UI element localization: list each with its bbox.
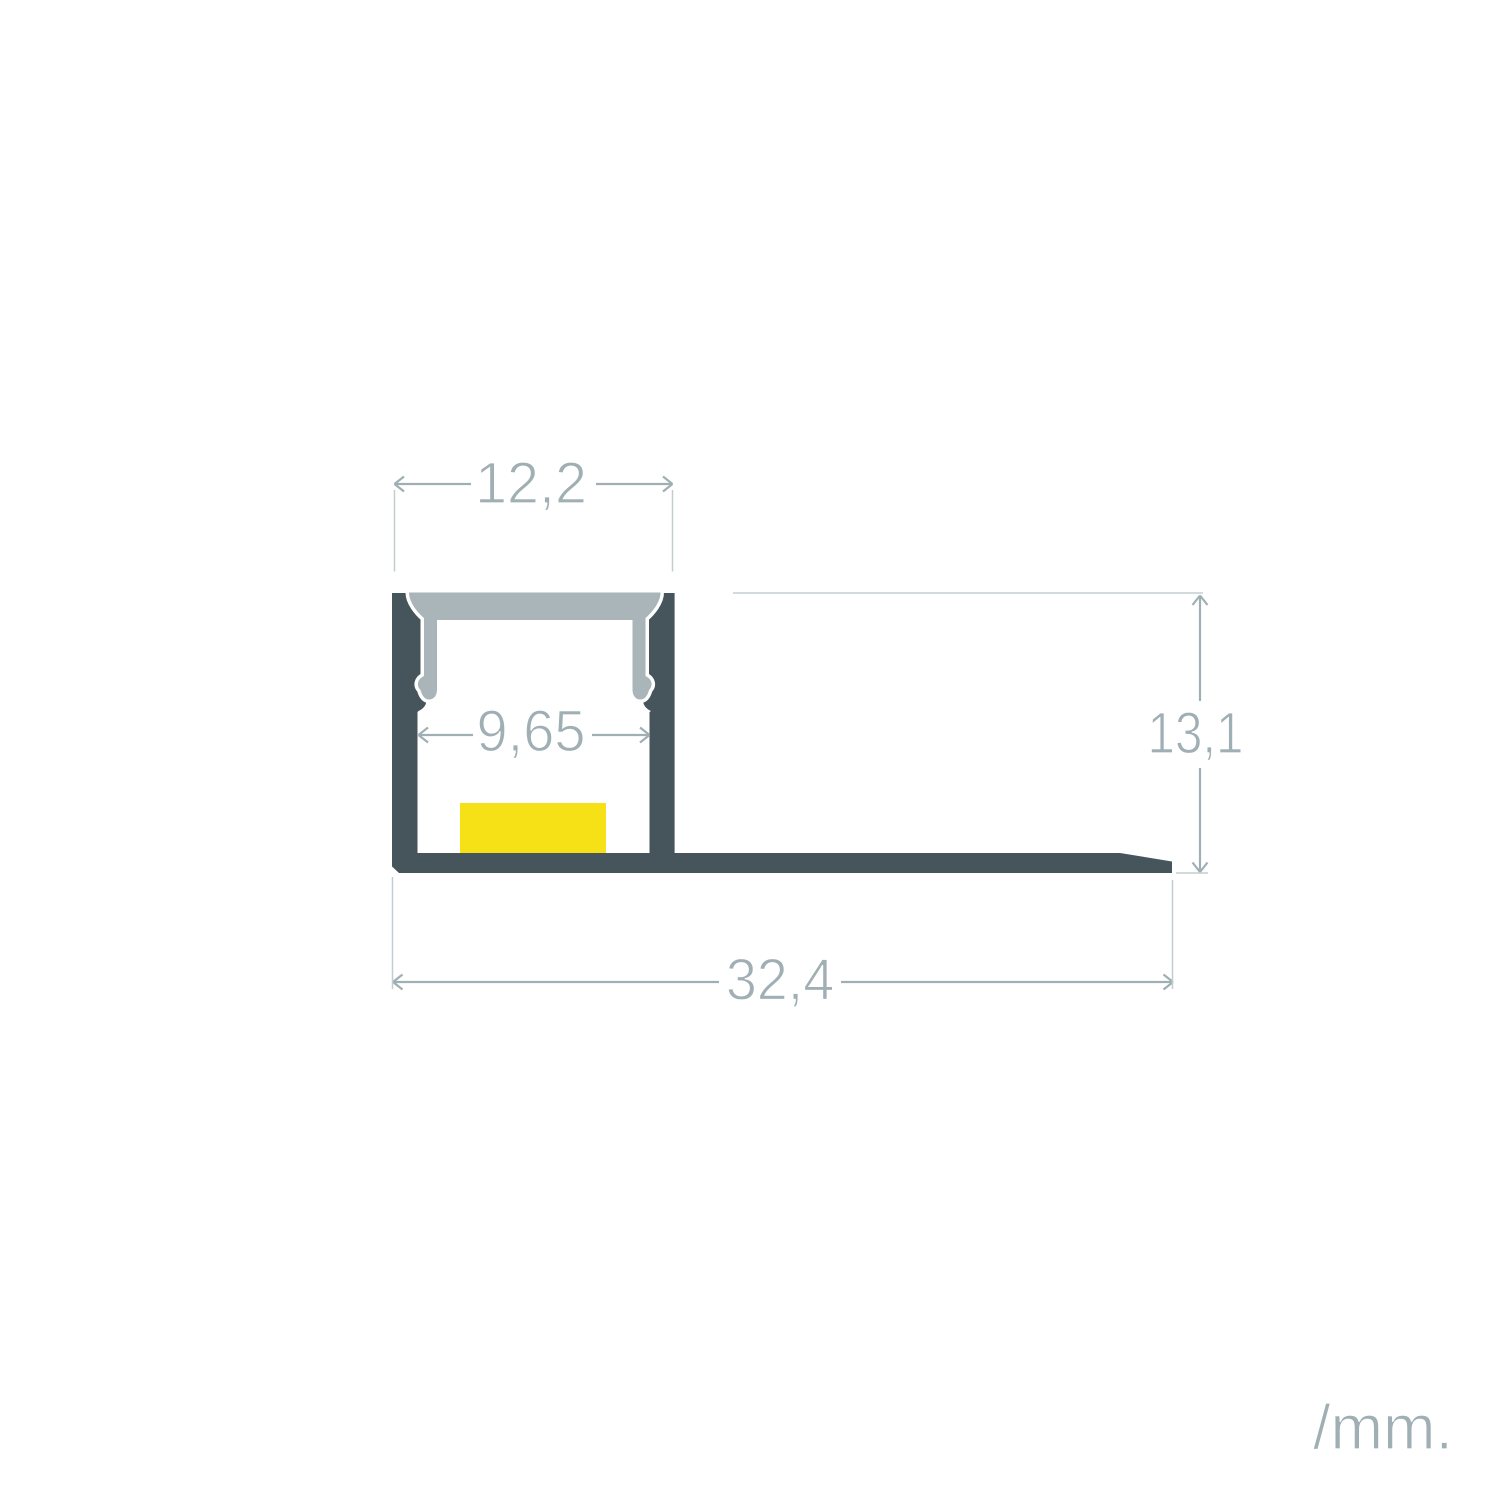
svg-text:12,2: 12,2 — [475, 452, 587, 516]
svg-text:9,65: 9,65 — [477, 699, 586, 764]
svg-text:13,1: 13,1 — [1148, 701, 1244, 766]
svg-text:32,4: 32,4 — [726, 948, 834, 1012]
svg-text:/mm.: /mm. — [1313, 1393, 1453, 1463]
